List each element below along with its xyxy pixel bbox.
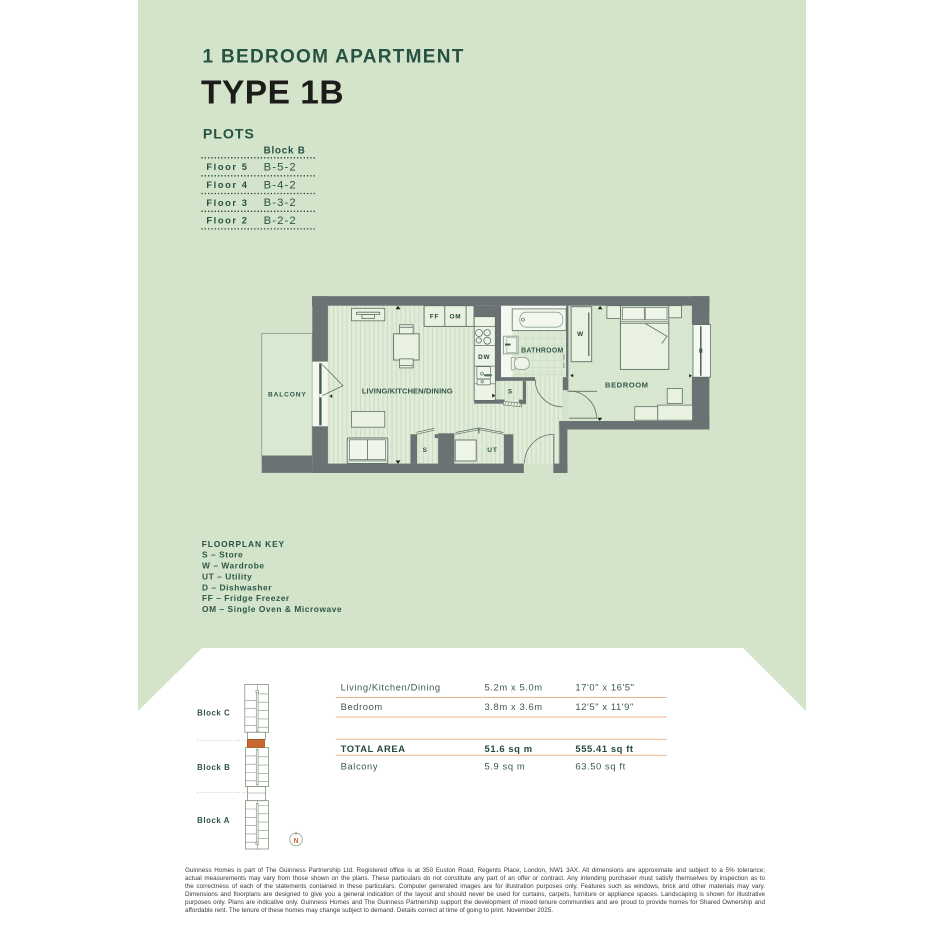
- svg-text:W – Wardrobe: W – Wardrobe: [202, 561, 265, 571]
- svg-text:Floor 4: Floor 4: [206, 180, 248, 190]
- svg-text:Bedroom: Bedroom: [341, 701, 383, 712]
- svg-text:LIVING/KITCHEN/DINING: LIVING/KITCHEN/DINING: [362, 387, 453, 396]
- svg-text:UT: UT: [487, 447, 497, 454]
- svg-text:Block A: Block A: [197, 816, 230, 825]
- svg-text:Floor 2: Floor 2: [206, 216, 248, 226]
- svg-text:S: S: [423, 447, 428, 454]
- svg-text:OM – Single Oven & Microwave: OM – Single Oven & Microwave: [202, 604, 342, 614]
- svg-text:FF: FF: [430, 314, 439, 321]
- svg-text:BEDROOM: BEDROOM: [605, 381, 649, 390]
- svg-text:FLOORPLAN KEY: FLOORPLAN KEY: [202, 539, 285, 549]
- svg-text:S – Store: S – Store: [202, 550, 243, 560]
- svg-text:B-2-2: B-2-2: [264, 215, 297, 227]
- svg-text:51.6 sq m: 51.6 sq m: [485, 743, 533, 754]
- svg-text:OM: OM: [450, 314, 462, 321]
- svg-text:S: S: [508, 389, 513, 396]
- svg-text:UT – Utility: UT – Utility: [202, 571, 252, 581]
- svg-text:BALCONY: BALCONY: [268, 392, 307, 399]
- svg-text:555.41 sq ft: 555.41 sq ft: [575, 743, 633, 754]
- svg-text:D – Dishwasher: D – Dishwasher: [202, 582, 272, 592]
- svg-text:DW: DW: [478, 354, 490, 361]
- svg-text:1 BEDROOM APARTMENT: 1 BEDROOM APARTMENT: [203, 47, 465, 68]
- svg-text:Block C: Block C: [197, 709, 230, 718]
- svg-text:3.8m x 3.6m: 3.8m x 3.6m: [485, 701, 543, 712]
- svg-text:BATHROOM: BATHROOM: [521, 348, 563, 355]
- svg-text:5.9 sq m: 5.9 sq m: [485, 760, 526, 771]
- svg-text:Block B: Block B: [197, 763, 230, 772]
- svg-text:Balcony: Balcony: [341, 760, 379, 771]
- svg-text:B-4-2: B-4-2: [264, 179, 297, 191]
- svg-text:17'0" x 16'5": 17'0" x 16'5": [575, 682, 634, 693]
- svg-text:12'5" x 11'9": 12'5" x 11'9": [575, 701, 634, 712]
- svg-text:Floor 5: Floor 5: [206, 162, 248, 172]
- svg-text:TOTAL AREA: TOTAL AREA: [341, 743, 406, 754]
- svg-text:FF – Fridge Freezer: FF – Fridge Freezer: [202, 593, 290, 603]
- svg-text:N: N: [293, 838, 298, 845]
- svg-text:Block B: Block B: [264, 145, 306, 156]
- svg-text:63.50 sq ft: 63.50 sq ft: [575, 760, 625, 771]
- svg-text:W: W: [577, 331, 584, 338]
- svg-text:Floor 3: Floor 3: [206, 198, 248, 208]
- svg-text:B-5-2: B-5-2: [264, 162, 297, 174]
- svg-text:B-3-2: B-3-2: [264, 197, 297, 209]
- svg-text:PLOTS: PLOTS: [203, 127, 255, 143]
- svg-text:TYPE 1B: TYPE 1B: [201, 74, 344, 111]
- svg-text:Living/Kitchen/Dining: Living/Kitchen/Dining: [341, 682, 441, 693]
- svg-text:5.2m x 5.0m: 5.2m x 5.0m: [485, 682, 543, 693]
